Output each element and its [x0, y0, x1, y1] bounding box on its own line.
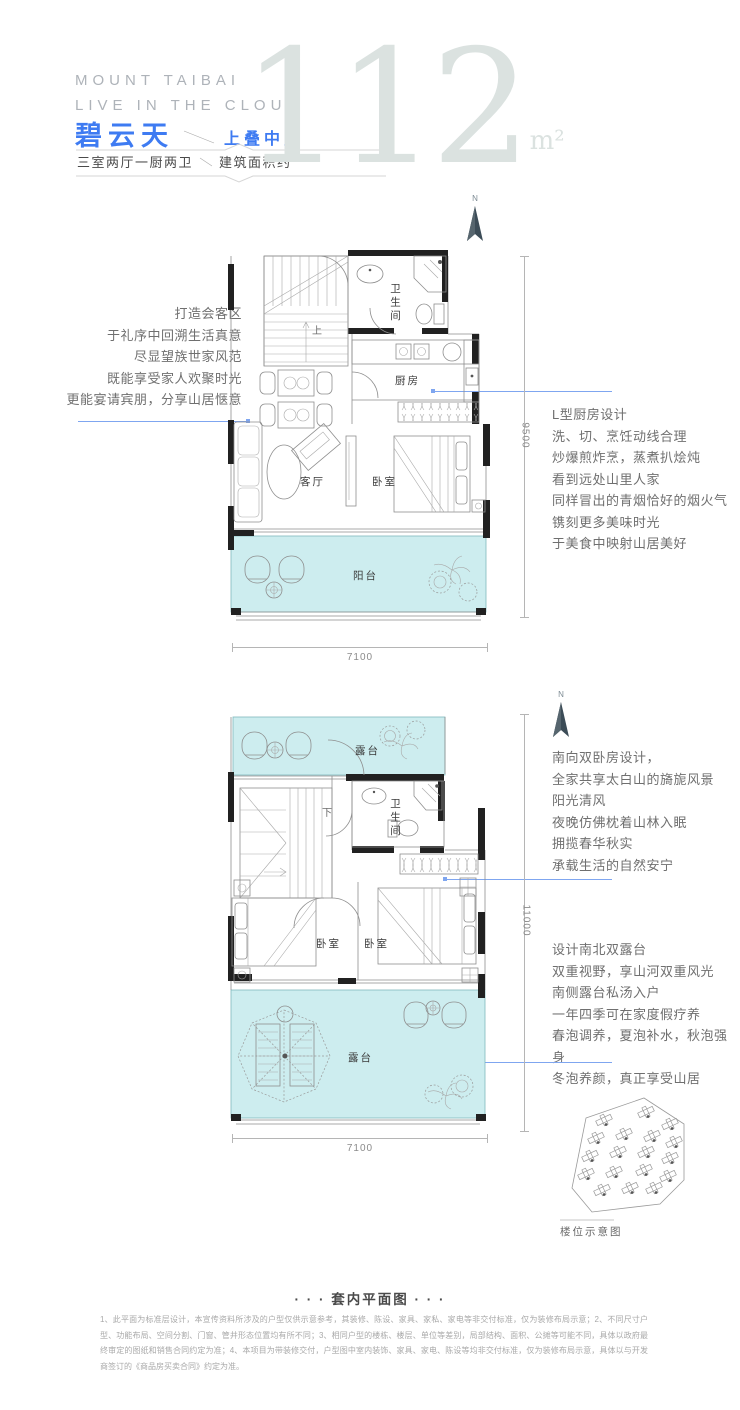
annotation-line: 于美食中映射山居美好 [552, 533, 732, 555]
double-bed [378, 888, 478, 982]
annotation-line: 于礼序中回溯生活真意 [30, 325, 242, 347]
dim-line-lower-width [232, 1138, 488, 1139]
site-plan-diagram [556, 1092, 706, 1228]
stairs [264, 256, 348, 366]
compass-upper: N [460, 194, 490, 245]
wardrobe [398, 402, 479, 422]
double-bed [394, 436, 485, 512]
dim-tick [520, 714, 529, 715]
disclaimer-text: 1、此平面为标准层设计，本宣传资料所涉及的户型仅供示意参考，其装修、陈设、家具、… [100, 1312, 648, 1374]
dim-line-upper-width [232, 647, 488, 648]
bedroom-door-arcs [294, 898, 360, 928]
kitchen-fixtures [352, 340, 479, 402]
tv-unit [292, 424, 341, 471]
annotation-line: 尽显望族世家风范 [30, 346, 242, 368]
annotation-line: 同样冒出的青烟恰好的烟火气 [552, 490, 732, 512]
dim-tick [232, 1134, 233, 1143]
coffee-table [267, 445, 301, 499]
area-unit: m² [530, 126, 565, 156]
annotation-line: 双重视野，享山河双重风光 [552, 961, 737, 983]
stair-label-down: 下 [322, 804, 332, 819]
room-label-balcony: 阳台 [353, 568, 378, 583]
single-bed [232, 880, 316, 982]
room-label-bathroom-lower: 卫生间 [388, 798, 403, 839]
compass-n-label: N [460, 194, 490, 203]
annotation-line: 更能宴请宾朋，分享山居惬意 [30, 389, 242, 411]
north-arrow-icon [546, 699, 576, 741]
dim-tick [232, 643, 233, 652]
dim-tick [520, 1131, 529, 1132]
brochure-page: MOUNT TAIBAI LIVE IN THE CLOUD 碧云天 上叠中户 … [0, 0, 740, 1410]
dim-label-lower-height: 11000 [521, 904, 532, 936]
annotation-line: 看到远处山里人家 [552, 469, 732, 491]
footer-title: · · · 套内平面图 · · · [0, 1288, 740, 1308]
annotation-line: 全家共享太白山的旖旎风景 [552, 769, 737, 791]
room-label-bedroom-right: 卧室 [364, 936, 389, 951]
dim-tick [487, 643, 488, 652]
stairs [240, 788, 332, 898]
wardrobe [400, 854, 478, 896]
compass-n-label: N [546, 690, 576, 699]
dim-tick [520, 617, 529, 618]
annotation-line: 炒爆煎炸烹，蒸煮扒烩炖 [552, 447, 732, 469]
annotation-line: 洗、切、烹饪动线合理 [552, 426, 732, 448]
room-label-bedroom-left: 卧室 [316, 936, 341, 951]
room-label-terrace-bottom: 露台 [348, 1050, 373, 1065]
annotation-line: 南向双卧房设计， [552, 747, 737, 769]
room-label-living: 客厅 [300, 474, 325, 489]
annotation-line: 拥揽春华秋实 [552, 833, 737, 855]
leader-line-living [78, 421, 248, 422]
stair-label-up: 上 [312, 322, 322, 337]
dining-set [260, 370, 332, 428]
bathroom-fixtures [326, 781, 444, 847]
dim-tick [487, 1134, 488, 1143]
annotation-kitchen: L型厨房设计 洗、切、烹饪动线合理 炒爆煎炸烹，蒸煮扒烩炖 看到远处山里人家 同… [552, 404, 732, 555]
annotation-line: 打造会客区 [30, 303, 242, 325]
dim-tick [520, 256, 529, 257]
room-label-bathroom-upper: 卫生间 [388, 283, 403, 324]
room-label-terrace-top: 露台 [355, 743, 380, 758]
site-buildings [576, 1104, 684, 1200]
dim-label-lower-width: 7100 [232, 1143, 488, 1154]
area-value: 112 [242, 44, 526, 174]
annotation-line: L型厨房设计 [552, 404, 732, 426]
spec-slash-icon [197, 156, 215, 168]
annotation-living: 打造会客区 于礼序中回溯生活真意 尽显望族世家风范 既能享受家人欢聚时光 更能宴… [30, 303, 242, 411]
annotation-line: 承载生活的自然安宁 [552, 855, 737, 877]
annotation-line: 镌刻更多美味时光 [552, 512, 732, 534]
annotation-line: 冬泡养颜，真正享受山居 [552, 1068, 737, 1090]
annotation-bedrooms: 南向双卧房设计， 全家共享太白山的旖旎风景 阳光清风 夜晚仿佛枕着山林入眠 拥揽… [552, 747, 737, 876]
site-plan-caption: 楼位示意图 [560, 1224, 623, 1239]
room-label-kitchen: 厨房 [395, 373, 420, 388]
room-label-bedroom-upper: 卧室 [372, 474, 397, 489]
annotation-terrace: 设计南北双露台 双重视野，享山河双重风光 南侧露台私汤入户 一年四季可在家度假疗… [552, 939, 737, 1090]
sofa [234, 422, 262, 522]
dim-label-upper-width: 7100 [232, 652, 488, 663]
dim-label-upper-height: 9500 [520, 422, 531, 448]
annotation-line: 夜晚仿佛枕着山林入眠 [552, 812, 737, 834]
annotation-line: 设计南北双露台 [552, 939, 737, 961]
north-arrow-icon [460, 203, 490, 245]
floor-plan-lower [228, 712, 500, 1144]
tv-console [346, 436, 356, 506]
brand-line-1: MOUNT TAIBAI [75, 72, 240, 89]
annotation-line: 南侧露台私汤入户 [552, 982, 737, 1004]
spec-text: 三室两厅一厨两卫 [77, 152, 193, 171]
annotation-line: 既能享受家人欢聚时光 [30, 368, 242, 390]
floor-plan-upper [228, 250, 500, 622]
area-figure: 112 m² [242, 44, 565, 174]
annotation-line: 一年四季可在家度假疗养 [552, 1004, 737, 1026]
compass-lower: N [546, 690, 576, 741]
annotation-line: 阳光清风 [552, 790, 737, 812]
